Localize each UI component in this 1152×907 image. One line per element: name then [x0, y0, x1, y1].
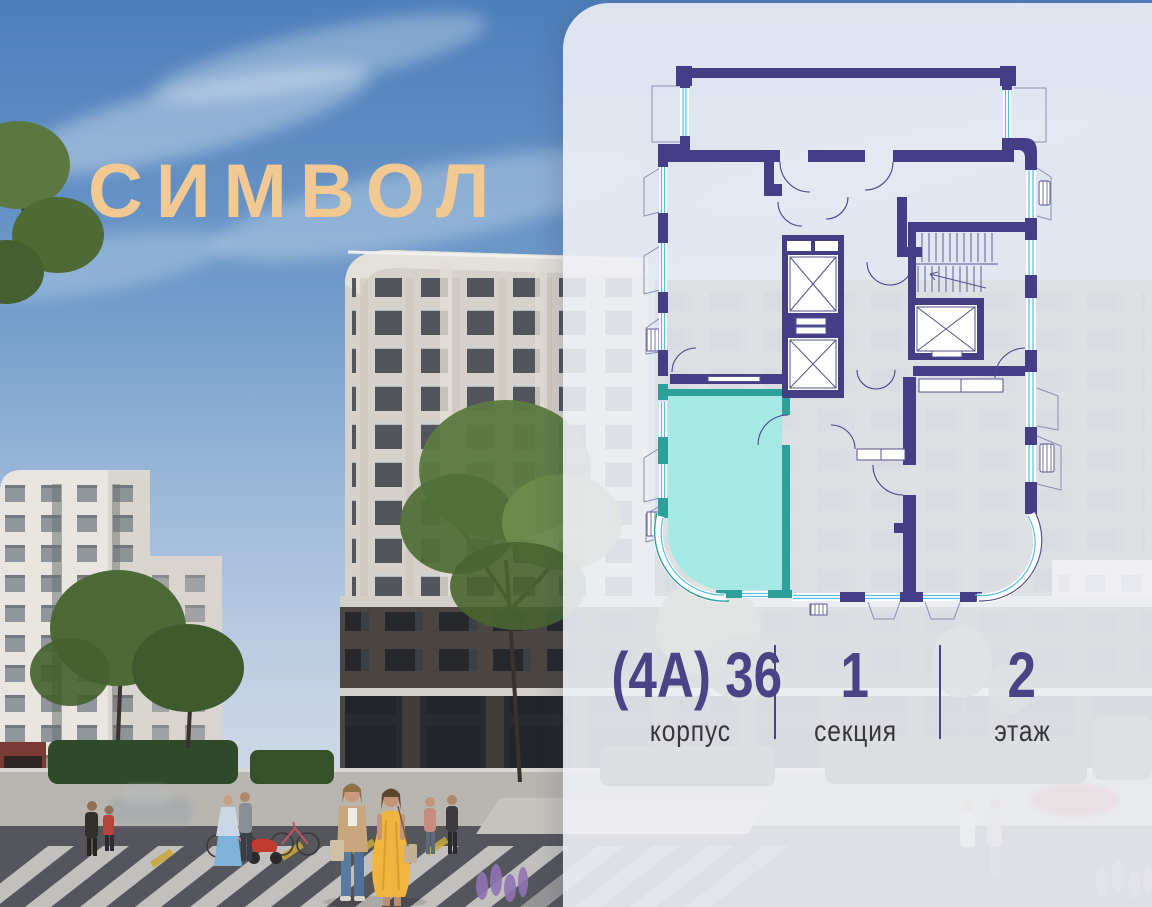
- elevator-core: [782, 235, 844, 398]
- selected-apartment[interactable]: [655, 384, 792, 601]
- logo-simvol: СИМВОЛ: [88, 148, 488, 235]
- floor-info: 2 этаж: [922, 643, 1122, 749]
- elevator-right: [908, 298, 984, 360]
- floor-number: 2: [1008, 643, 1036, 707]
- page: СИМВОЛ: [0, 0, 1152, 907]
- floor-plan: [630, 50, 1070, 630]
- fixtures: [857, 379, 1003, 460]
- apartment-panel: (4А) 36 корпус 1 секция 2 этаж: [563, 3, 1152, 907]
- apartment-info: (4А) 36 корпус 1 секция 2 этаж: [563, 643, 1152, 763]
- stairs: [916, 233, 998, 292]
- floor-label: этаж: [922, 715, 1122, 749]
- section-number: 1: [841, 643, 869, 707]
